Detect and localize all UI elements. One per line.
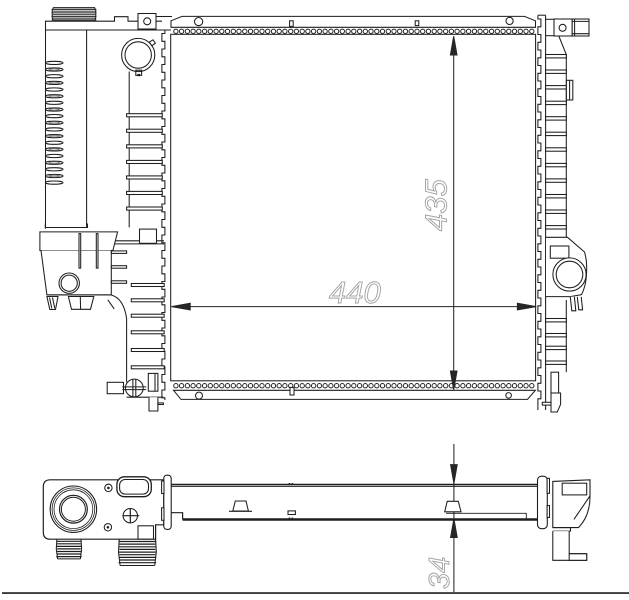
svg-text:440: 440 [329,275,381,310]
svg-text:34: 34 [424,557,456,589]
svg-text:435: 435 [419,179,454,231]
